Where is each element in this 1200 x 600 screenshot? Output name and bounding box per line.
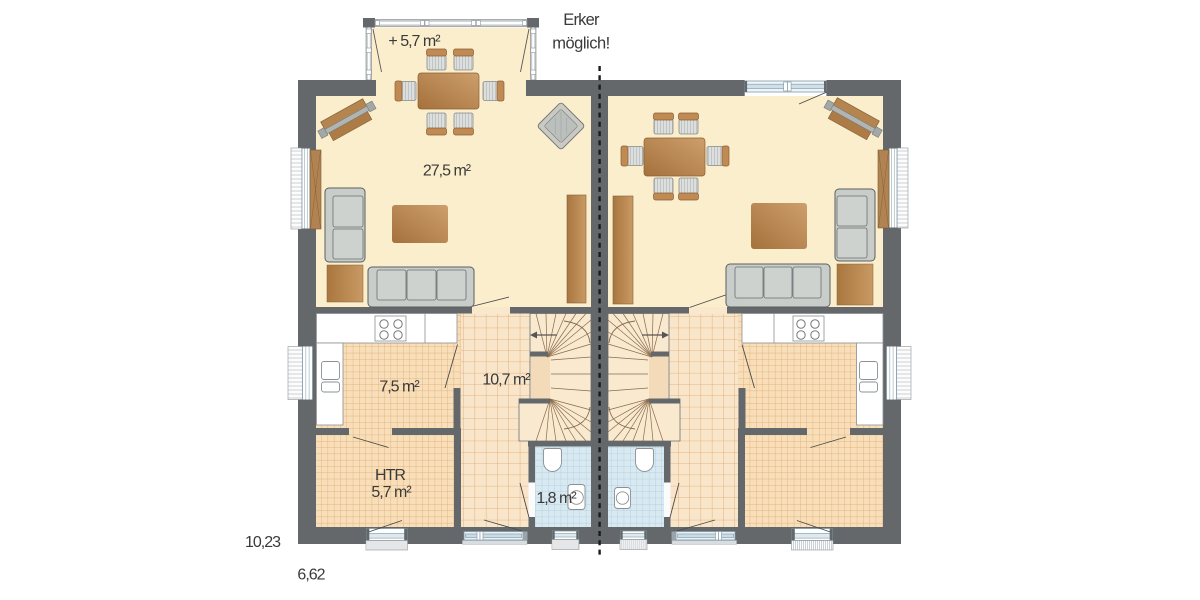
svg-text:HTR: HTR bbox=[375, 467, 405, 484]
svg-text:möglich!: möglich! bbox=[552, 35, 609, 53]
svg-text:27,5 m²: 27,5 m² bbox=[423, 163, 472, 180]
svg-text:10,23: 10,23 bbox=[245, 534, 281, 551]
svg-text:5,7 m²: 5,7 m² bbox=[371, 484, 412, 501]
svg-text:10,7 m²: 10,7 m² bbox=[482, 372, 531, 389]
svg-text:+ 5,7 m²: + 5,7 m² bbox=[388, 33, 441, 50]
svg-text:6,62: 6,62 bbox=[297, 567, 325, 584]
svg-text:7,5 m²: 7,5 m² bbox=[379, 379, 420, 396]
svg-text:Erker: Erker bbox=[563, 11, 600, 29]
svg-text:1,8 m²: 1,8 m² bbox=[536, 490, 577, 507]
